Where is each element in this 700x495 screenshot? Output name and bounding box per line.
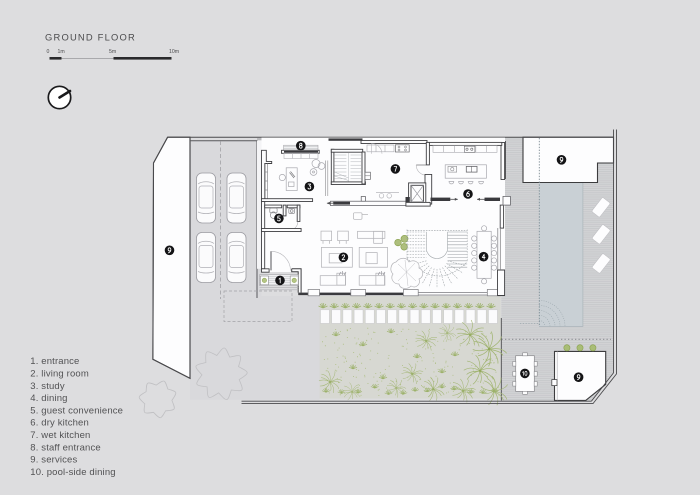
svg-text:5. guest convenience: 5. guest convenience <box>30 405 123 416</box>
svg-text:1m: 1m <box>58 49 65 55</box>
svg-text:6. dry kitchen: 6. dry kitchen <box>30 418 89 429</box>
svg-text:4. dining: 4. dining <box>30 393 67 404</box>
svg-text:1. entrance: 1. entrance <box>30 356 79 367</box>
svg-text:9. services: 9. services <box>30 455 77 466</box>
svg-text:GROUND FLOOR: GROUND FLOOR <box>45 32 136 43</box>
svg-text:8. staff entrance: 8. staff entrance <box>30 442 101 453</box>
svg-text:2. living room: 2. living room <box>30 369 89 380</box>
svg-text:5m: 5m <box>109 49 116 55</box>
svg-text:3. study: 3. study <box>30 381 65 392</box>
svg-text:7. wet kitchen: 7. wet kitchen <box>30 430 90 441</box>
svg-text:10. pool-side dining: 10. pool-side dining <box>30 467 115 478</box>
svg-text:0: 0 <box>47 49 50 55</box>
svg-text:10m: 10m <box>169 49 179 55</box>
